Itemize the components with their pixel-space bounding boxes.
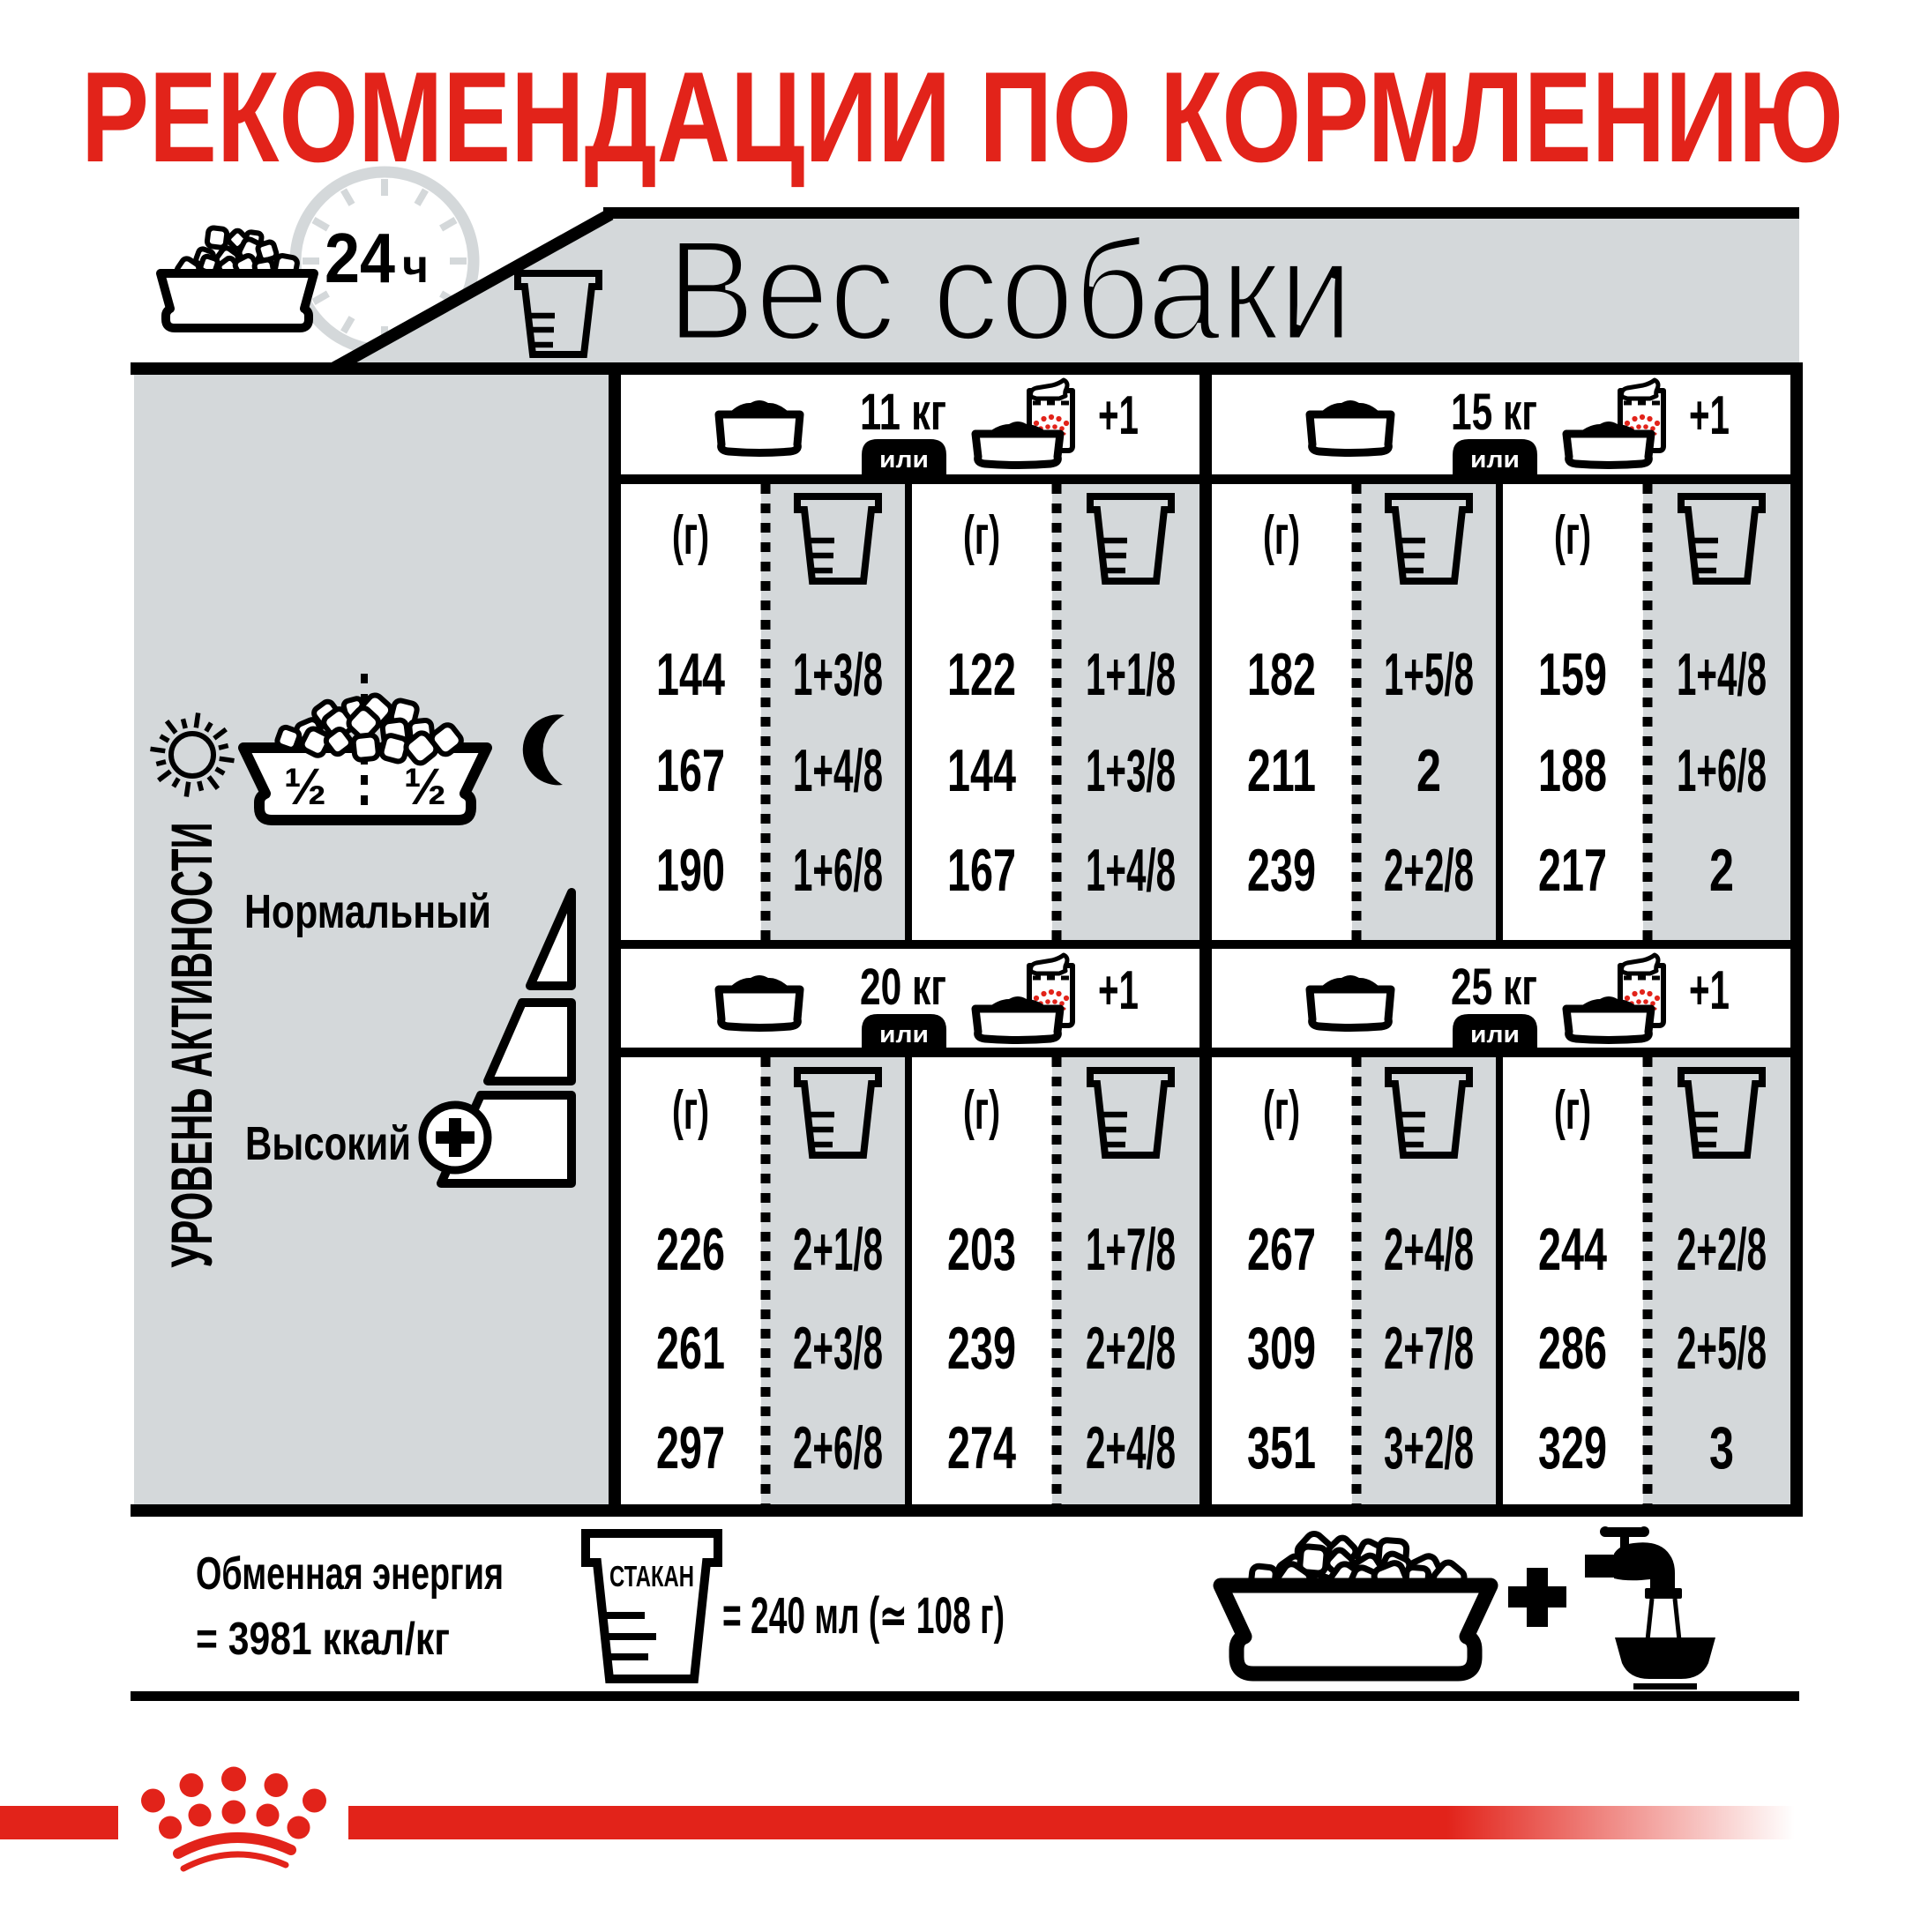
- svg-text:261: 261: [656, 1315, 725, 1382]
- svg-text:3: 3: [1709, 1414, 1734, 1481]
- svg-text:Нормальный: Нормальный: [244, 885, 491, 938]
- svg-text:188: 188: [1538, 737, 1607, 804]
- svg-text:2+6/8: 2+6/8: [793, 1414, 883, 1481]
- svg-text:2+4/8: 2+4/8: [1384, 1216, 1474, 1283]
- svg-text:182: 182: [1247, 641, 1316, 708]
- svg-text:½: ½: [284, 758, 326, 816]
- svg-text:2+7/8: 2+7/8: [1384, 1315, 1474, 1382]
- svg-text:244: 244: [1538, 1216, 1607, 1283]
- svg-text:(г): (г): [1554, 1080, 1591, 1141]
- svg-text:203: 203: [947, 1216, 1016, 1283]
- svg-text:15 кг: 15 кг: [1451, 384, 1537, 441]
- svg-text:УРОВЕНЬ АКТИВНОСТИ: УРОВЕНЬ АКТИВНОСТИ: [159, 823, 224, 1268]
- svg-text:3+2/8: 3+2/8: [1384, 1414, 1474, 1481]
- svg-text:24: 24: [325, 219, 395, 297]
- svg-text:или: или: [1470, 1021, 1520, 1048]
- svg-text:25 кг: 25 кг: [1451, 959, 1537, 1016]
- svg-text:(г): (г): [1554, 505, 1591, 566]
- svg-text:167: 167: [656, 737, 725, 804]
- svg-text:11 кг: 11 кг: [860, 384, 946, 441]
- svg-text:(г): (г): [1263, 505, 1300, 566]
- svg-text:+1: +1: [1689, 960, 1730, 1021]
- svg-text:2+1/8: 2+1/8: [793, 1216, 883, 1283]
- svg-text:239: 239: [947, 1315, 1016, 1382]
- svg-text:+1: +1: [1098, 960, 1139, 1021]
- svg-text:1+4/8: 1+4/8: [1677, 641, 1767, 708]
- svg-text:1+3/8: 1+3/8: [793, 641, 883, 708]
- svg-text:20 кг: 20 кг: [860, 959, 946, 1016]
- svg-text:190: 190: [656, 837, 725, 904]
- svg-text:2+5/8: 2+5/8: [1677, 1315, 1767, 1382]
- svg-text:Вес собаки: Вес собаки: [667, 211, 1353, 370]
- svg-text:239: 239: [1247, 837, 1316, 904]
- svg-text:½: ½: [404, 758, 446, 816]
- svg-text:2+4/8: 2+4/8: [1086, 1414, 1176, 1481]
- svg-text:267: 267: [1247, 1216, 1316, 1283]
- svg-text:(г): (г): [672, 1080, 709, 1141]
- svg-text:1+7/8: 1+7/8: [1086, 1216, 1176, 1283]
- svg-text:= 3981 ккал/кг: = 3981 ккал/кг: [196, 1614, 450, 1665]
- svg-text:159: 159: [1538, 641, 1607, 708]
- svg-text:167: 167: [947, 837, 1016, 904]
- svg-text:ч: ч: [402, 240, 429, 293]
- svg-text:Высокий: Высокий: [245, 1117, 411, 1170]
- svg-text:226: 226: [656, 1216, 725, 1283]
- svg-text:309: 309: [1247, 1315, 1316, 1382]
- svg-text:122: 122: [947, 641, 1016, 708]
- svg-text:2: 2: [1709, 837, 1734, 904]
- svg-text:РЕКОМЕНДАЦИИ ПО КОРМЛЕНИЮ: РЕКОМЕНДАЦИИ ПО КОРМЛЕНИЮ: [81, 45, 1843, 189]
- svg-text:(г): (г): [672, 505, 709, 566]
- svg-text:144: 144: [656, 641, 725, 708]
- svg-text:(г): (г): [1263, 1080, 1300, 1141]
- svg-text:274: 274: [947, 1414, 1016, 1481]
- svg-text:1+1/8: 1+1/8: [1086, 641, 1176, 708]
- svg-text:= 240 мл (≃ 108 г): = 240 мл (≃ 108 г): [722, 1587, 1005, 1645]
- svg-text:1+4/8: 1+4/8: [793, 737, 883, 804]
- svg-text:1+6/8: 1+6/8: [793, 837, 883, 904]
- svg-text:2+2/8: 2+2/8: [1677, 1216, 1767, 1283]
- svg-text:1+3/8: 1+3/8: [1086, 737, 1176, 804]
- svg-text:297: 297: [656, 1414, 725, 1481]
- svg-text:217: 217: [1538, 837, 1607, 904]
- svg-text:2+2/8: 2+2/8: [1384, 837, 1474, 904]
- svg-text:или: или: [1470, 446, 1520, 473]
- svg-text:+1: +1: [1689, 385, 1730, 446]
- svg-text:2: 2: [1416, 737, 1441, 804]
- svg-text:Обменная энергия: Обменная энергия: [196, 1548, 504, 1600]
- svg-text:2+2/8: 2+2/8: [1086, 1315, 1176, 1382]
- svg-text:(г): (г): [963, 1080, 1000, 1141]
- svg-text:(г): (г): [963, 505, 1000, 566]
- svg-text:1+5/8: 1+5/8: [1384, 641, 1474, 708]
- svg-text:351: 351: [1247, 1414, 1316, 1481]
- svg-text:1+4/8: 1+4/8: [1086, 837, 1176, 904]
- svg-text:329: 329: [1538, 1414, 1607, 1481]
- svg-text:1+6/8: 1+6/8: [1677, 737, 1767, 804]
- svg-text:144: 144: [947, 737, 1016, 804]
- svg-text:2+3/8: 2+3/8: [793, 1315, 883, 1382]
- svg-text:+1: +1: [1098, 385, 1139, 446]
- svg-text:286: 286: [1538, 1315, 1607, 1382]
- svg-text:211: 211: [1247, 737, 1316, 804]
- svg-text:или: или: [879, 446, 929, 473]
- svg-text:СТАКАН: СТАКАН: [609, 1560, 694, 1593]
- svg-text:или: или: [879, 1021, 929, 1048]
